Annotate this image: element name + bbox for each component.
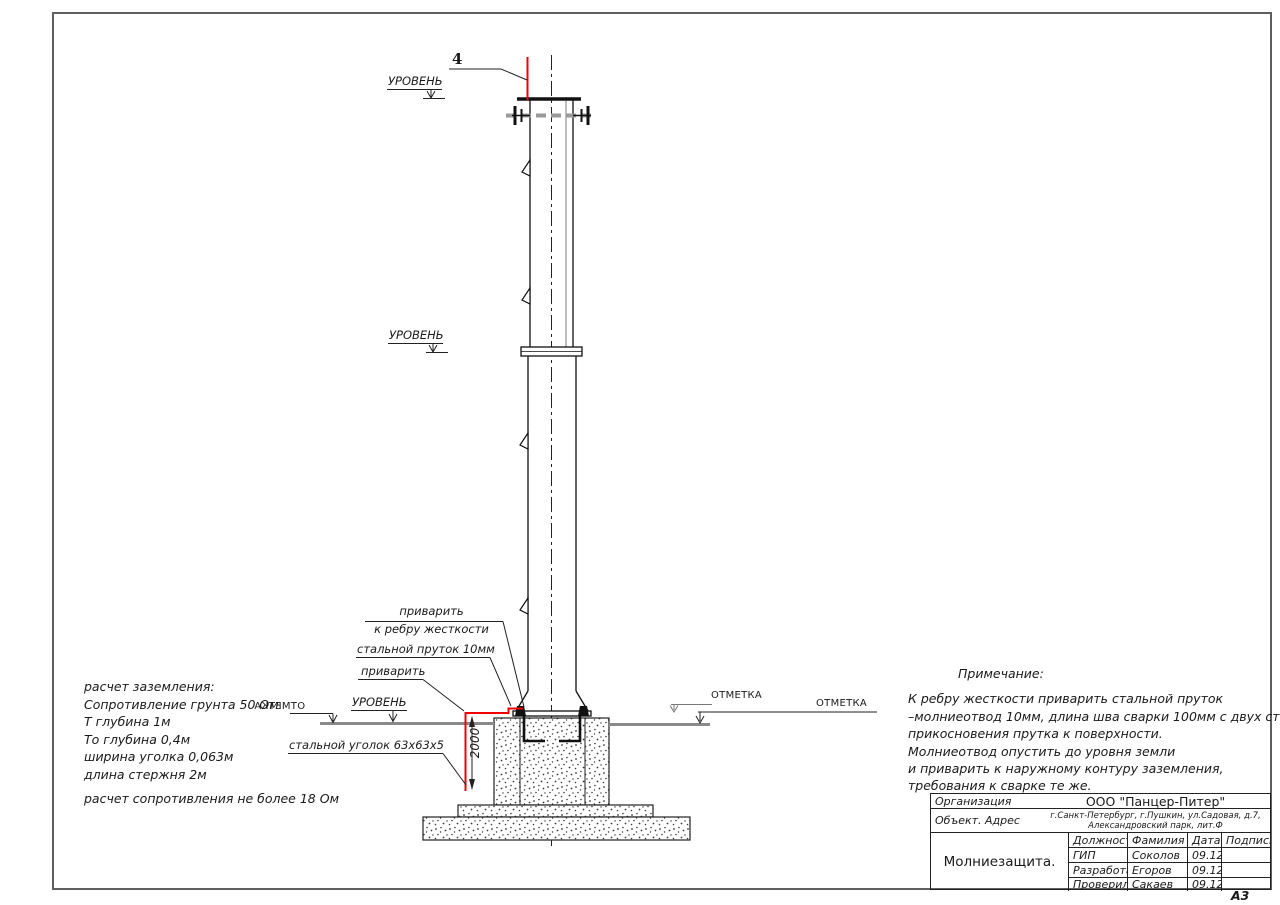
org-label: Организация [931, 794, 1041, 808]
row-role: Разработал [1069, 863, 1128, 878]
col-header-role: Должность [1069, 833, 1128, 848]
foundation-pier [494, 718, 609, 805]
row-date: 09.12 [1188, 848, 1222, 863]
calc-line: расчет сопротивления не более 18 Ом [84, 790, 339, 808]
note-line: Молниеотвод опустить до уровня земли [908, 743, 1280, 760]
grounding-calc-block: расчет заземления: Сопротивление грунта … [84, 678, 339, 808]
foundation [423, 718, 690, 840]
object-address: г.Санкт-Петербург, г.Пушкин, ул.Садовая,… [1041, 809, 1270, 832]
calc-line: ширина уголка 0,063м [84, 748, 339, 766]
col-header-sign: Подпись [1222, 833, 1270, 848]
notes-block: Примечание: К ребру жесткости приварить … [908, 665, 1280, 795]
steel-rod-label: стальной пруток 10мм [357, 642, 495, 656]
row-name: Соколов [1128, 848, 1188, 863]
address-line: Александровский парк, лит.Ф [1088, 821, 1223, 831]
calc-line: То глубина 0,4м [84, 731, 339, 749]
weld-label: приварить [361, 664, 425, 678]
row-name: Сакаев [1128, 878, 1188, 891]
row-role: Проверил [1069, 878, 1128, 891]
note-line: К ребру жесткости приварить стальной пру… [908, 690, 1280, 707]
row-sign [1222, 848, 1270, 863]
calc-line: расчет заземления: [84, 678, 339, 696]
note-line: и приварить к наружному контуру заземлен… [908, 760, 1280, 777]
drawing-sheet: 4 УРОВЕНЬ УРОВЕНЬ УРОВЕНЬ ОТМЕТКА ОТМЕТК… [0, 0, 1280, 905]
col-header-date: Дата [1188, 833, 1222, 848]
row-sign [1222, 863, 1270, 878]
address-line: г.Санкт-Петербург, г.Пушкин, ул.Садовая,… [1050, 811, 1261, 821]
row-date: 09.12 [1188, 863, 1222, 878]
top-bolt-band [506, 106, 594, 125]
level-label-mid: УРОВЕНЬ [389, 328, 444, 342]
level-label-top: УРОВЕНЬ [388, 74, 443, 88]
foundation-mid-slab [458, 805, 653, 817]
otmetka-label-2: ОТМЕТКА [816, 698, 867, 709]
object-label: Объект. Адрес [931, 809, 1041, 832]
calc-line: длина стержня 2м [84, 766, 339, 784]
org-value: ООО "Панцер-Питер" [1041, 794, 1270, 808]
col-header-name: Фамилия [1128, 833, 1188, 848]
foundation-bottom-slab [423, 817, 690, 840]
note-line: прикосновения прутка к поверхности. [908, 725, 1280, 742]
weld-to-rib-label-line1: приварить [360, 604, 503, 618]
detail-number-4: 4 [452, 50, 462, 68]
calc-line: Сопротивление грунта 50 Ом [84, 696, 339, 714]
weld-to-rib-label-line2: к ребру жесткости [360, 622, 503, 636]
title-block: Организация ООО "Панцер-Питер" Объект. А… [930, 793, 1271, 890]
sheet-format-label: А3 [1231, 888, 1249, 903]
row-name: Егоров [1128, 863, 1188, 878]
note-line: –молниеотвод 10мм, длина шва сварки 100м… [908, 708, 1280, 725]
otmetka-label-1: ОТМЕТКА [711, 690, 762, 701]
document-title: Молниезащита. [931, 833, 1069, 891]
row-role: ГИП [1069, 848, 1128, 863]
level-label-base: УРОВЕНЬ [352, 695, 407, 709]
calc-line: Т глубина 1м [84, 713, 339, 731]
notes-title: Примечание: [958, 665, 1280, 682]
lightning-rod [466, 57, 528, 791]
row-date: 09.12 [1188, 878, 1222, 891]
dimension-2000-text: 2000 [468, 714, 482, 772]
